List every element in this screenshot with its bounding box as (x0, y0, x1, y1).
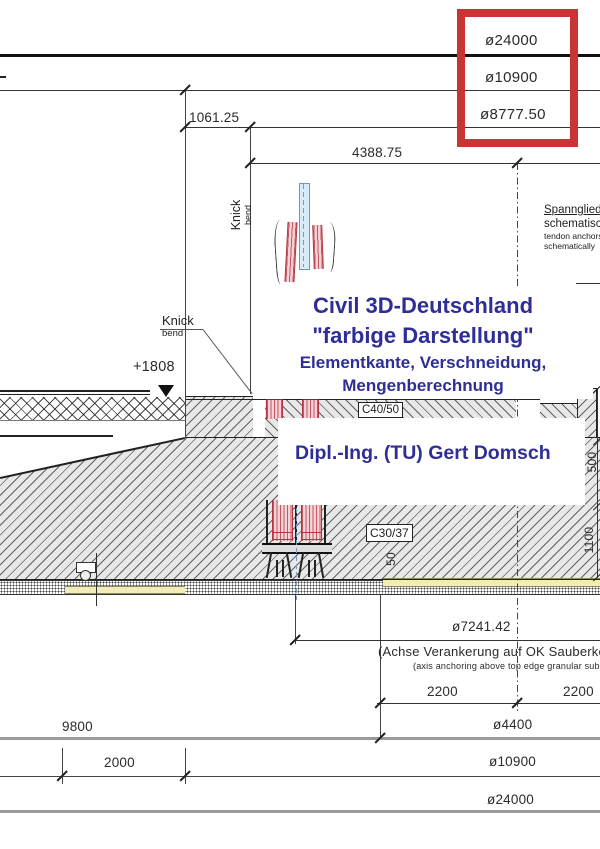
edge-mark (0, 76, 6, 78)
achse-note-en: (axis anchoring above top edge granular … (413, 661, 600, 671)
dim-text-10900-bottom: ø10900 (489, 754, 536, 769)
elevation-marker-icon (158, 385, 174, 397)
ground-line-upper (0, 390, 150, 392)
knick-leader-label: Knick bend (162, 313, 194, 339)
watermark-line4: Mengenberechnung (253, 374, 593, 397)
anchor-outline-3 (324, 500, 326, 544)
detail-circle (80, 570, 91, 581)
achse-note-de: (Achse Verankerung auf OK Sauberkeitssch… (378, 644, 600, 659)
funnel-stem-2 (282, 560, 284, 577)
yellow-strip-left (65, 586, 185, 594)
dim-line-4400 (0, 737, 600, 740)
dim-text-7241: ø7241.42 (452, 619, 511, 634)
highlight-rectangle (457, 9, 578, 147)
ext-line-250 (250, 127, 251, 394)
knick-label-rotated: Knick bend (229, 186, 257, 244)
watermark-line3: Elementkante, Verschneidung, (253, 351, 593, 374)
ext-line-185 (185, 90, 186, 437)
tendon-duct-blue (299, 183, 310, 270)
funnel-stem-3 (308, 560, 310, 577)
anchor-top-left (266, 399, 283, 419)
anchor-axis-blue (296, 500, 297, 600)
tendon-note-de1: Spannglieder (544, 203, 600, 217)
tendon-note: Spannglieder schematisch tendon anchors … (544, 203, 600, 251)
dim-text-50: 50 (384, 539, 398, 579)
knick-leader-underline (160, 329, 203, 330)
trumpet-curve-right (322, 222, 336, 273)
dim-text-9800: 9800 (62, 719, 93, 734)
dim-text-4400: ø4400 (493, 717, 532, 732)
concrete-label-c4050: C40/50 (358, 402, 403, 418)
tendon-note-de2: schematisch (544, 217, 600, 231)
anchor-outline-1 (266, 500, 268, 544)
knick-leader-de: Knick (162, 313, 194, 328)
right-dim-line (597, 388, 598, 578)
anchor-plate (262, 543, 332, 554)
elevation-text: +1808 (133, 359, 175, 375)
dim-line-4388 (250, 163, 600, 164)
tendon-note-en1: tendon anchors (544, 231, 600, 241)
slab-bottom-edge (0, 579, 600, 580)
pedestal-block (185, 396, 256, 438)
watermark-line2: "farbige Darstellung" (253, 321, 593, 351)
note-line (576, 283, 600, 284)
funnel-stem-1 (276, 560, 278, 577)
anchor-head-left (272, 532, 293, 540)
ext-line-185b (185, 748, 186, 784)
trumpet-curve-left (273, 220, 288, 285)
dim-text-4388: 4388.75 (352, 145, 402, 160)
detail-line (96, 553, 97, 606)
dim-line-10900-bottom (0, 776, 600, 777)
dim-text-24000-bottom: ø24000 (487, 792, 534, 807)
dim-line-7241 (295, 640, 600, 641)
tendon-duct-axis (303, 184, 304, 267)
dim-text-1061: 1061.25 (189, 110, 239, 125)
dim-text-2000: 2000 (104, 755, 135, 770)
dim-text-2200-right: 2200 (563, 684, 594, 699)
author-text: Dipl.-Ing. (TU) Gert Domsch (295, 442, 551, 465)
dim-line-2200 (377, 703, 600, 704)
dim-line-24000-bottom (0, 810, 600, 813)
dim-text-1100: 1100 (582, 520, 596, 560)
pedestal-top-edge (185, 399, 540, 400)
pedestal-gap (253, 396, 265, 437)
cad-drawing-canvas: ø24000 ø10900 ø8777.50 1061.25 4388.75 K… (0, 0, 600, 849)
knick-en: bend (243, 186, 253, 244)
soil-band-bottom (0, 420, 185, 421)
watermark-line1: Civil 3D-Deutschland (253, 291, 593, 321)
ext-line-380 (380, 595, 381, 739)
knick-leader-line (203, 329, 253, 394)
tendon-note-en2: schematically (544, 241, 600, 251)
funnel-stem-4 (314, 560, 316, 577)
ground-line-lower (0, 394, 150, 395)
dim-text-2200-left: 2200 (427, 684, 458, 699)
watermark-text: Civil 3D-Deutschland "farbige Darstellun… (253, 291, 593, 397)
anchor-top-right (302, 399, 319, 419)
ground-line-short (0, 435, 113, 437)
soil-hatch-area (0, 397, 185, 421)
ext-line-62 (62, 748, 63, 784)
anchor-head-right (301, 532, 322, 540)
knick-de: Knick (229, 186, 243, 244)
